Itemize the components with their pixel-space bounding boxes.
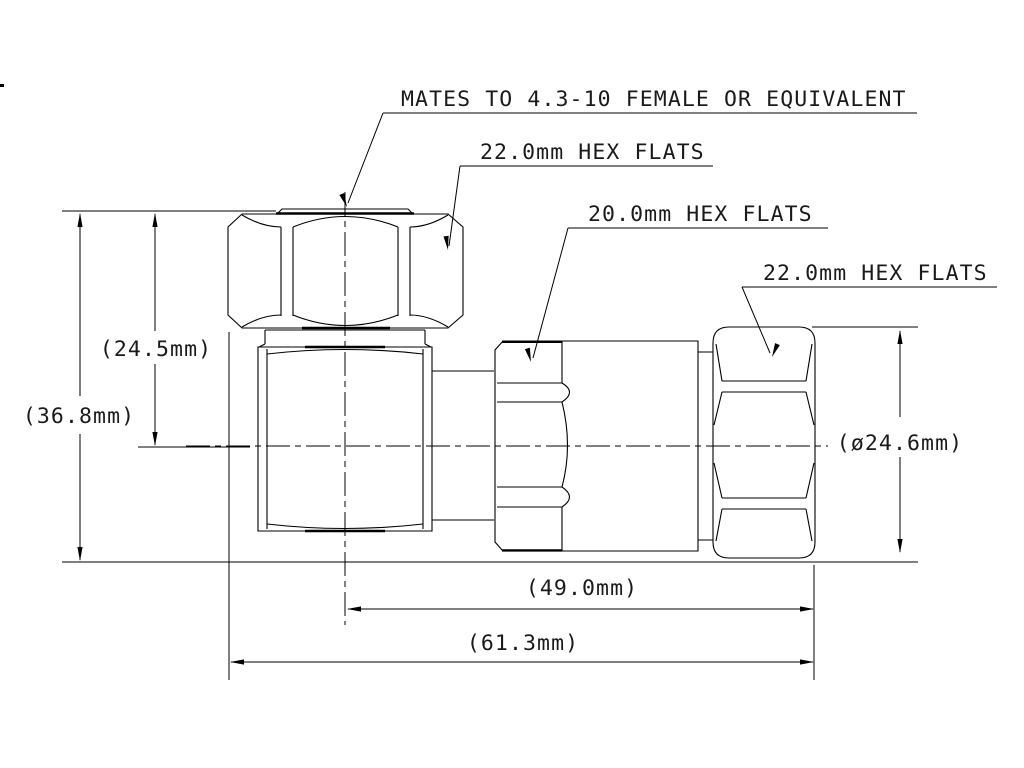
right-hex-callout-label: 22.0mm HEX FLATS bbox=[763, 261, 988, 286]
mates-note-label: MATES TO 4.3-10 FEMALE OR EQUIVALENT bbox=[401, 87, 907, 112]
dim-text-61-3: (61.3mm) bbox=[467, 631, 579, 656]
technical-drawing-canvas: MATES TO 4.3-10 FEMALE OR EQUIVALENT 22.… bbox=[0, 0, 1024, 768]
top-hex-callout-label: 22.0mm HEX FLATS bbox=[480, 140, 705, 165]
dim-text-24-5: (24.5mm) bbox=[100, 337, 212, 362]
dim-text-24-6: (ø24.6mm) bbox=[837, 431, 963, 456]
dim-text-49-0: (49.0mm) bbox=[526, 576, 638, 601]
middle-hex-callout-label: 20.0mm HEX FLATS bbox=[588, 202, 813, 227]
edge-artifact-mark bbox=[0, 84, 4, 87]
dim-text-36-8: (36.8mm) bbox=[23, 404, 135, 429]
